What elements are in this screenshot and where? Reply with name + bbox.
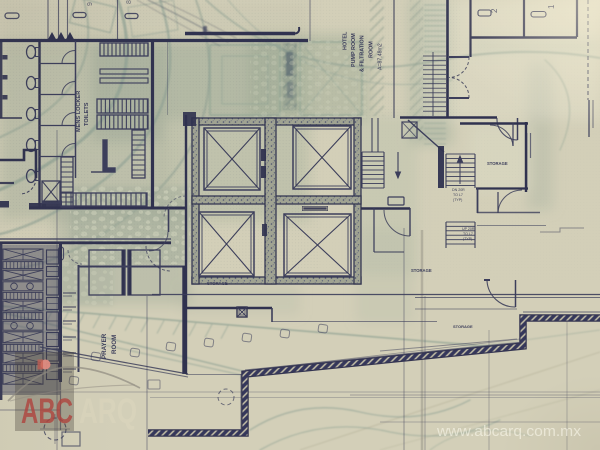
svg-text:www.abcarq.com.mx: www.abcarq.com.mx bbox=[436, 423, 582, 440]
svg-text:ABC: ABC bbox=[21, 392, 73, 431]
svg-text:ARQ: ARQ bbox=[79, 392, 137, 431]
